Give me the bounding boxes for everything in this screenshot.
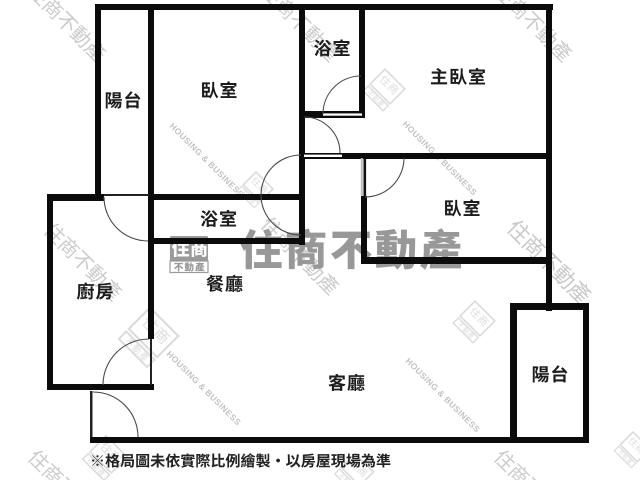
svg-text:HOUSING & BUSINESS: HOUSING & BUSINESS bbox=[165, 349, 244, 428]
svg-text:HOUSING & BUSINESS: HOUSING & BUSINESS bbox=[168, 121, 247, 200]
svg-text:HOUSING & BUSINESS: HOUSING & BUSINESS bbox=[404, 356, 483, 435]
